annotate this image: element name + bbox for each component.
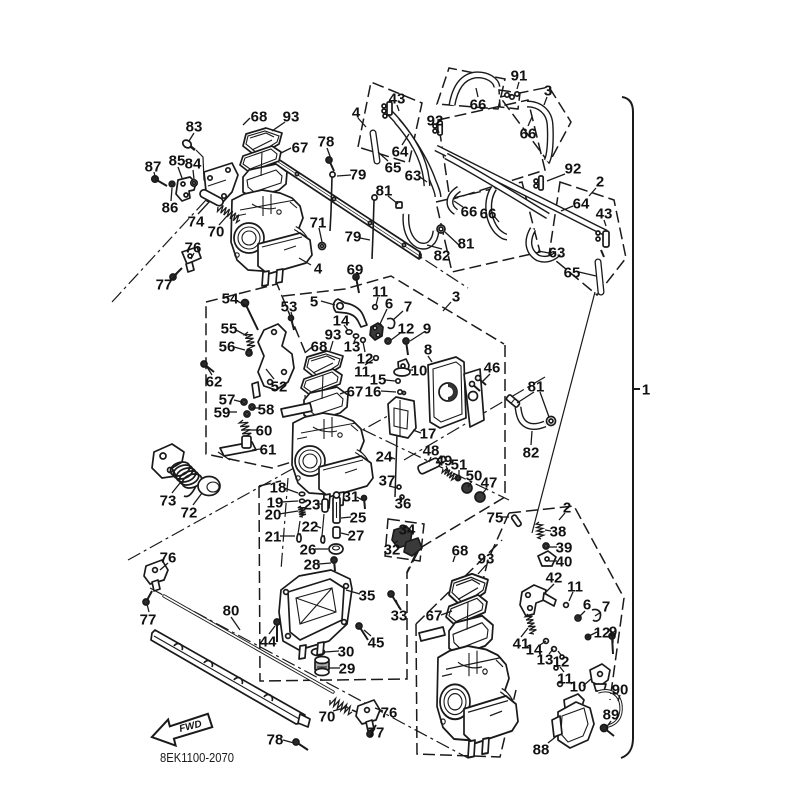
svg-text:42: 42 bbox=[546, 570, 563, 587]
svg-text:56: 56 bbox=[219, 339, 236, 356]
svg-text:77: 77 bbox=[140, 612, 157, 629]
svg-text:8EK1100-2070: 8EK1100-2070 bbox=[160, 750, 234, 765]
svg-text:9: 9 bbox=[423, 321, 431, 338]
svg-text:35: 35 bbox=[359, 588, 376, 605]
svg-text:12: 12 bbox=[553, 654, 570, 671]
svg-text:90: 90 bbox=[612, 682, 629, 699]
svg-text:2: 2 bbox=[596, 174, 604, 191]
svg-text:83: 83 bbox=[186, 119, 203, 136]
svg-text:87: 87 bbox=[145, 159, 162, 176]
svg-text:66: 66 bbox=[461, 204, 478, 221]
svg-text:59: 59 bbox=[214, 405, 231, 422]
svg-text:24: 24 bbox=[376, 449, 393, 466]
svg-text:8: 8 bbox=[424, 342, 432, 359]
svg-text:82: 82 bbox=[434, 248, 451, 265]
svg-text:63: 63 bbox=[549, 245, 566, 262]
svg-text:64: 64 bbox=[573, 196, 590, 213]
svg-text:30: 30 bbox=[338, 644, 355, 661]
svg-text:76: 76 bbox=[381, 705, 398, 722]
svg-text:82: 82 bbox=[523, 445, 540, 462]
svg-text:37: 37 bbox=[379, 473, 396, 490]
svg-text:76: 76 bbox=[185, 240, 202, 257]
svg-text:52: 52 bbox=[271, 379, 288, 396]
svg-text:79: 79 bbox=[345, 229, 362, 246]
svg-text:55: 55 bbox=[221, 321, 238, 338]
svg-text:53: 53 bbox=[281, 299, 298, 316]
svg-text:46: 46 bbox=[484, 360, 501, 377]
svg-text:32: 32 bbox=[384, 542, 401, 559]
svg-text:34: 34 bbox=[399, 522, 416, 539]
svg-text:31: 31 bbox=[343, 489, 360, 506]
svg-text:65: 65 bbox=[564, 265, 581, 282]
svg-text:86: 86 bbox=[162, 200, 179, 217]
svg-text:10: 10 bbox=[411, 363, 428, 380]
svg-text:93: 93 bbox=[478, 551, 495, 568]
svg-text:2: 2 bbox=[563, 500, 571, 517]
svg-text:72: 72 bbox=[181, 505, 198, 522]
svg-text:4: 4 bbox=[352, 105, 361, 122]
svg-text:67: 67 bbox=[292, 140, 309, 157]
svg-text:54: 54 bbox=[222, 291, 239, 308]
svg-text:41: 41 bbox=[513, 636, 530, 653]
svg-text:81: 81 bbox=[458, 236, 475, 253]
svg-text:71: 71 bbox=[310, 215, 327, 232]
svg-text:23: 23 bbox=[304, 497, 321, 514]
svg-text:63: 63 bbox=[405, 168, 422, 185]
svg-text:3: 3 bbox=[544, 83, 552, 100]
svg-text:13: 13 bbox=[344, 339, 361, 356]
svg-text:60: 60 bbox=[256, 423, 273, 440]
svg-text:68: 68 bbox=[251, 109, 268, 126]
svg-text:43: 43 bbox=[389, 91, 406, 108]
svg-text:11: 11 bbox=[567, 579, 583, 596]
svg-text:29: 29 bbox=[339, 661, 356, 678]
svg-text:81: 81 bbox=[528, 379, 545, 396]
svg-text:68: 68 bbox=[452, 543, 469, 560]
svg-text:73: 73 bbox=[160, 493, 177, 510]
svg-text:1: 1 bbox=[642, 382, 650, 399]
svg-text:64: 64 bbox=[392, 144, 409, 161]
svg-text:7: 7 bbox=[404, 299, 412, 316]
svg-text:51: 51 bbox=[451, 457, 468, 474]
svg-text:78: 78 bbox=[267, 732, 284, 749]
svg-text:78: 78 bbox=[318, 134, 335, 151]
svg-text:92: 92 bbox=[427, 113, 444, 130]
svg-text:4: 4 bbox=[314, 261, 323, 278]
svg-text:66: 66 bbox=[480, 206, 497, 223]
svg-text:93: 93 bbox=[325, 327, 342, 344]
svg-text:74: 74 bbox=[188, 214, 205, 231]
svg-text:92: 92 bbox=[565, 161, 582, 178]
svg-text:70: 70 bbox=[208, 224, 225, 241]
svg-text:38: 38 bbox=[550, 524, 567, 541]
svg-text:33: 33 bbox=[391, 608, 408, 625]
svg-text:62: 62 bbox=[206, 374, 223, 391]
svg-text:76: 76 bbox=[160, 550, 177, 567]
svg-text:91: 91 bbox=[511, 68, 528, 85]
svg-text:11: 11 bbox=[557, 671, 573, 688]
svg-text:77: 77 bbox=[156, 277, 173, 294]
svg-text:40: 40 bbox=[556, 554, 573, 571]
svg-text:79: 79 bbox=[350, 167, 367, 184]
svg-text:58: 58 bbox=[258, 402, 275, 419]
svg-text:21: 21 bbox=[265, 529, 282, 546]
svg-text:20: 20 bbox=[265, 507, 282, 524]
svg-text:88: 88 bbox=[533, 742, 550, 759]
svg-text:44: 44 bbox=[260, 634, 277, 651]
svg-text:89: 89 bbox=[603, 707, 620, 724]
svg-text:67: 67 bbox=[426, 608, 443, 625]
svg-text:16: 16 bbox=[365, 384, 382, 401]
svg-text:36: 36 bbox=[395, 496, 412, 513]
svg-text:3: 3 bbox=[452, 289, 460, 306]
svg-text:6: 6 bbox=[583, 597, 591, 614]
svg-text:81: 81 bbox=[376, 183, 393, 200]
svg-text:17: 17 bbox=[420, 426, 437, 443]
svg-text:65: 65 bbox=[385, 160, 402, 177]
svg-text:80: 80 bbox=[223, 603, 240, 620]
svg-text:50: 50 bbox=[466, 468, 483, 485]
svg-text:85: 85 bbox=[169, 153, 186, 170]
svg-text:12: 12 bbox=[594, 625, 611, 642]
svg-text:5: 5 bbox=[310, 294, 318, 311]
svg-text:67: 67 bbox=[347, 384, 364, 401]
svg-text:84: 84 bbox=[185, 156, 202, 173]
svg-text:47: 47 bbox=[481, 475, 498, 492]
svg-text:43: 43 bbox=[596, 206, 613, 223]
svg-text:28: 28 bbox=[304, 557, 321, 574]
svg-text:70: 70 bbox=[319, 709, 336, 726]
svg-text:61: 61 bbox=[260, 442, 277, 459]
svg-text:22: 22 bbox=[302, 519, 319, 536]
svg-text:75: 75 bbox=[487, 510, 504, 527]
svg-text:93: 93 bbox=[283, 109, 300, 126]
svg-text:11: 11 bbox=[372, 284, 388, 301]
svg-text:25: 25 bbox=[350, 510, 367, 527]
svg-text:12: 12 bbox=[398, 321, 415, 338]
svg-text:27: 27 bbox=[348, 528, 365, 545]
svg-text:45: 45 bbox=[368, 635, 385, 652]
svg-text:7: 7 bbox=[602, 599, 610, 616]
svg-text:66: 66 bbox=[470, 97, 487, 114]
svg-text:77: 77 bbox=[368, 725, 385, 742]
svg-text:66: 66 bbox=[520, 126, 537, 143]
svg-text:69: 69 bbox=[347, 262, 364, 279]
